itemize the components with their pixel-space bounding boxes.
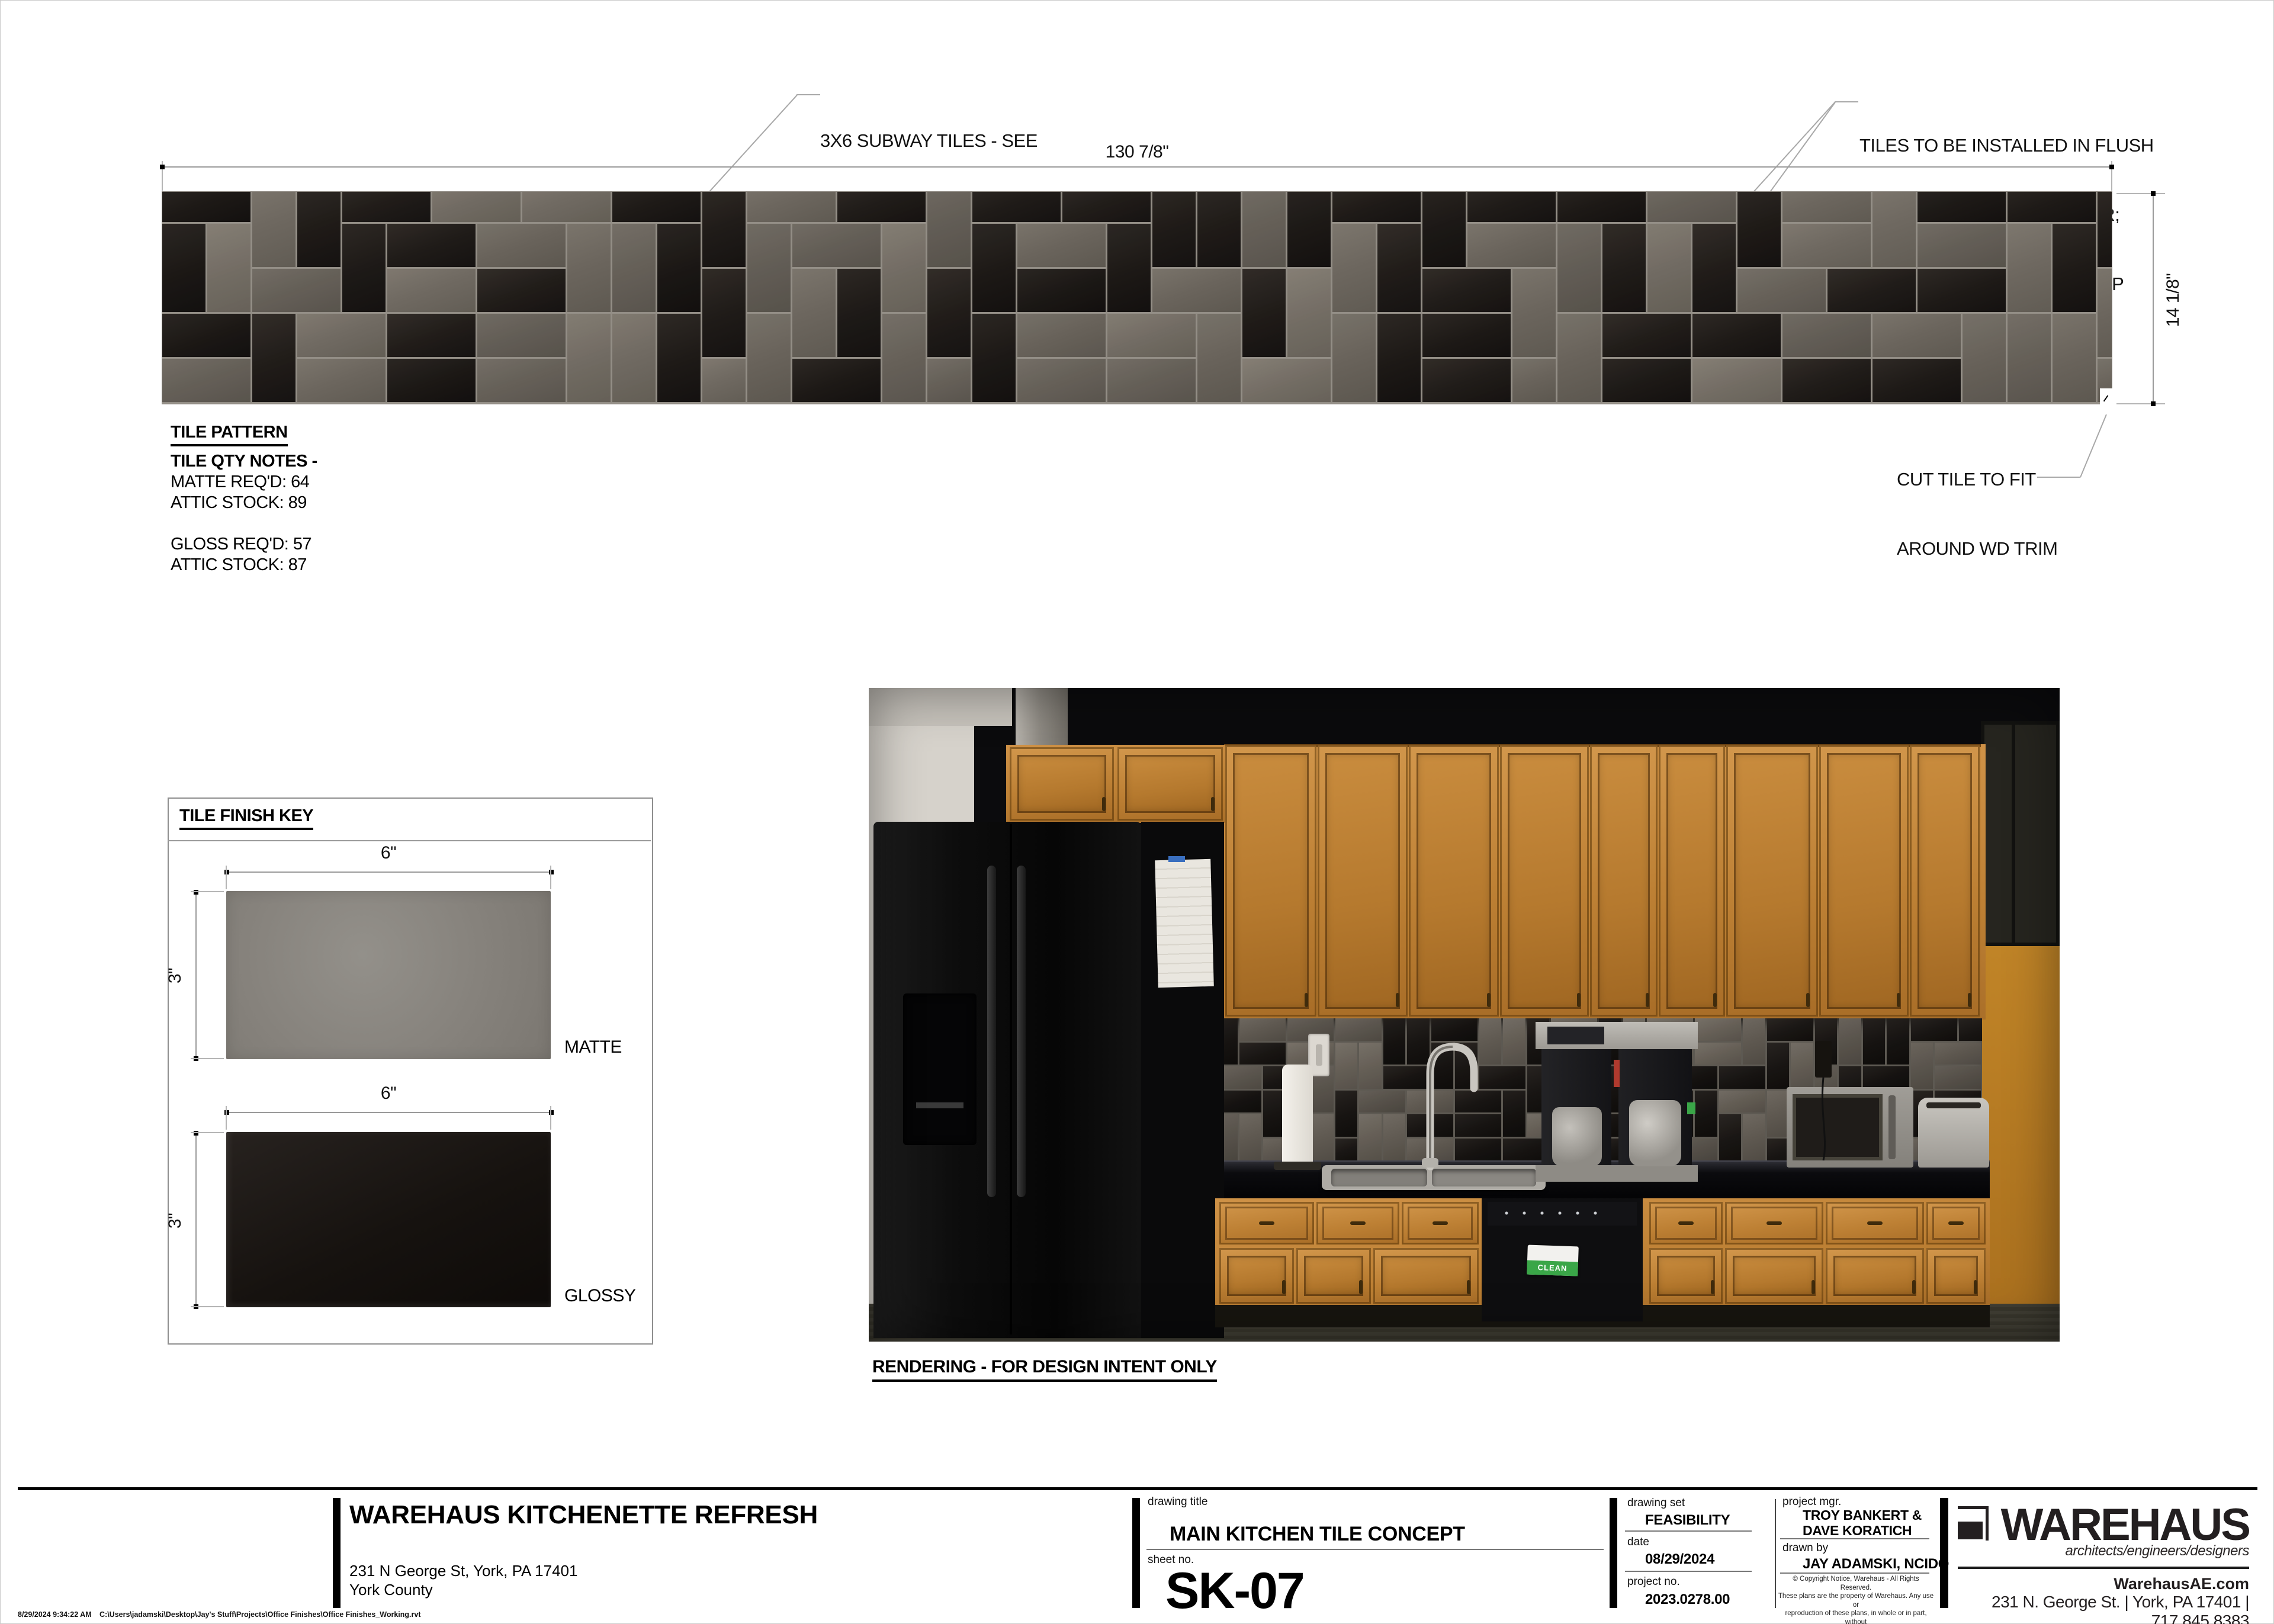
cabinet-door — [1659, 745, 1725, 1017]
divider — [1625, 1571, 1752, 1572]
matte-tile — [522, 192, 611, 222]
dimension-matte-width: 6" — [226, 843, 551, 863]
matte-tile — [2008, 314, 2051, 402]
matte-tile — [927, 359, 971, 402]
dimension-matte-height: 3" — [165, 940, 185, 1011]
cabinet-door — [1225, 745, 1316, 1017]
matte-tile — [297, 314, 386, 357]
cabinet-drawer — [1826, 1202, 1924, 1244]
extension-line — [191, 1132, 224, 1133]
gloss-tile — [2098, 192, 2112, 267]
matte-tile — [432, 192, 521, 222]
divider — [1780, 1572, 1929, 1574]
gloss-tile — [2053, 224, 2096, 312]
matte-tile — [1647, 224, 1691, 312]
matte-tile — [612, 224, 656, 312]
label-project-mgr: project mgr. — [1782, 1496, 1841, 1509]
matte-tile — [1197, 314, 1241, 402]
gloss-tile — [387, 359, 476, 402]
glossy-label: GLOSSY — [564, 1286, 635, 1306]
gloss-tile — [927, 269, 971, 357]
clean-tag: CLEAN — [1527, 1245, 1579, 1276]
cabinet-drawer — [1649, 1202, 1723, 1244]
label-date: date — [1627, 1536, 1649, 1549]
matte-tile — [1242, 192, 1286, 267]
gloss-tile — [1107, 224, 1151, 312]
matte-tile — [1107, 314, 1196, 357]
date-value: 08/29/2024 — [1645, 1551, 1714, 1568]
gloss-tile — [1242, 269, 1286, 357]
logo-tagline: architects/engineers/designers — [1958, 1543, 2249, 1559]
gloss-tile — [1692, 314, 1781, 357]
gloss-tile — [972, 192, 1061, 222]
tile-finish-key-heading: TILE FINISH KEY — [179, 806, 313, 830]
matte-tile — [1332, 224, 1376, 312]
project-number: 2023.0278.00 — [1645, 1591, 1730, 1608]
file-path: C:\Users\jadamski\Desktop\Jay's Stuff\Pr… — [99, 1610, 421, 1619]
gloss-tile — [1602, 314, 1691, 357]
gloss-tile — [837, 192, 926, 222]
gloss-tile — [1332, 192, 1421, 222]
gloss-tile — [2008, 192, 2096, 222]
matte-tile — [882, 314, 926, 402]
divider — [1146, 1549, 1604, 1550]
matte-tile — [1242, 359, 1331, 402]
cabinet-door — [1318, 745, 1408, 1017]
matte-tile — [1872, 314, 1961, 357]
matte-tile — [792, 269, 836, 357]
project-manager-line1: TROY BANKERT & — [1803, 1507, 1922, 1523]
dimension-line — [195, 1133, 197, 1307]
warehaus-logo-icon — [1958, 1505, 1991, 1541]
matte-tile — [702, 359, 746, 402]
cabinet-door — [1500, 745, 1589, 1017]
matte-tile — [747, 224, 791, 312]
matte-tile — [1557, 224, 1601, 312]
extension-line — [2116, 403, 2165, 404]
project-manager-line2: DAVE KORATICH — [1803, 1523, 1912, 1539]
gloss-tile — [477, 269, 566, 312]
matte-tile — [387, 269, 476, 312]
leader-line — [1835, 101, 1858, 102]
dimension-tick — [2151, 191, 2156, 196]
gloss-tile — [612, 192, 701, 222]
logo-rule — [1958, 1567, 2249, 1569]
gloss-tile — [1737, 192, 1781, 267]
matte-tile — [477, 314, 566, 357]
cabinet-drawer — [1402, 1202, 1479, 1244]
cabinet-door — [1725, 1248, 1823, 1304]
project-address-line2: York County — [349, 1581, 433, 1599]
matte-tile — [1737, 269, 1826, 312]
matte-tile — [162, 359, 250, 402]
matte-tile — [1647, 192, 1736, 222]
matte-tile — [1963, 314, 2006, 402]
gloss-tile — [1467, 192, 1556, 222]
gloss-tile — [1377, 224, 1421, 312]
cabinet-door — [1726, 745, 1818, 1017]
print-timestamp: 8/29/2024 9:34:22 AM — [18, 1610, 92, 1619]
label-drawing-set: drawing set — [1627, 1497, 1685, 1510]
gloss-tile — [1422, 269, 1511, 312]
gloss-tile — [1602, 224, 1646, 312]
matte-tile — [2098, 269, 2112, 357]
matte-tile — [252, 192, 296, 267]
gloss-tile — [387, 314, 476, 357]
gloss-tile — [702, 269, 746, 357]
matte-tile — [882, 224, 926, 312]
drawing-set: FEASIBILITY — [1645, 1512, 1730, 1529]
matte-tile — [1017, 359, 1106, 402]
extension-line — [550, 866, 551, 889]
extension-line — [226, 866, 227, 889]
gloss-tile — [252, 314, 296, 402]
gloss-tile — [387, 224, 476, 267]
matte-tile — [252, 269, 341, 312]
cabinet-drawer — [1316, 1202, 1399, 1244]
gloss-tile — [837, 269, 881, 357]
annotation-cut-tile: CUT TILE TO FIT AROUND WD TRIM — [1897, 422, 2057, 606]
matte-tile — [1512, 269, 1556, 357]
dimension-strip-height: 14 1/8" — [2163, 259, 2183, 342]
gloss-tile — [972, 314, 1016, 402]
gloss-tile — [657, 224, 701, 312]
gloss-tile — [162, 314, 250, 357]
sheet-number: SK-07 — [1165, 1562, 1304, 1620]
cabinet-door — [1010, 747, 1114, 821]
gloss-tile — [1692, 224, 1736, 312]
gloss-tile — [1197, 192, 1241, 267]
cabinet-door — [1590, 745, 1658, 1017]
matte-tile — [1287, 269, 1331, 357]
matte-tile — [1557, 314, 1601, 402]
gloss-tile — [1287, 192, 1331, 267]
label-drawing-title: drawing title — [1148, 1496, 1207, 1509]
dimension-line — [226, 1112, 551, 1113]
gloss-tile — [1918, 269, 2006, 312]
matte-tile — [477, 359, 566, 402]
matte-tile — [792, 224, 881, 267]
divider — [1780, 1538, 1929, 1539]
gloss-tile — [1782, 359, 1871, 402]
glossy-tile-sample — [226, 1132, 551, 1307]
gloss-tile — [342, 192, 431, 222]
drawn-by: JAY ADAMSKI, NCIDQ — [1803, 1556, 1949, 1572]
gloss-tile — [657, 314, 701, 402]
gloss-tile — [297, 192, 341, 267]
dimension-line — [226, 872, 551, 873]
leader-line — [796, 94, 820, 95]
cabinet-door — [1926, 1248, 1986, 1304]
tile-pattern-strip — [162, 192, 2112, 404]
gloss-tile — [1872, 359, 1961, 402]
gloss-tile — [972, 224, 1016, 312]
gloss-tile — [792, 359, 881, 402]
gloss-tile — [1422, 359, 1511, 402]
cabinet-door — [1373, 1248, 1479, 1304]
project-address-line1: 231 N George St, York, PA 17401 — [349, 1562, 577, 1580]
matte-tile — [297, 359, 386, 402]
divider — [168, 840, 651, 841]
gloss-tile — [1377, 314, 1421, 402]
dimension-glossy-height: 3" — [165, 1185, 185, 1256]
dimension-line-width — [162, 166, 2112, 168]
extension-line — [191, 1306, 224, 1307]
matte-tile — [612, 314, 656, 402]
gloss-tile — [1918, 192, 2006, 222]
matte-label: MATTE — [564, 1037, 622, 1057]
matte-tile — [1782, 224, 1871, 267]
matte-tile — [1512, 359, 1556, 402]
matte-tile — [1332, 314, 1376, 402]
extension-line — [550, 1106, 551, 1130]
cabinet-door — [1910, 745, 1980, 1017]
matte-tile — [1017, 314, 1106, 357]
cabinet-door — [1117, 747, 1223, 821]
label-project-no: project no. — [1627, 1575, 1680, 1588]
cabinet-drawer — [1926, 1202, 1986, 1244]
matte-tile — [2008, 224, 2051, 312]
matte-tile — [747, 192, 836, 222]
drawing-title: MAIN KITCHEN TILE CONCEPT — [1170, 1523, 1465, 1546]
logo-website: WarehausAE.com — [1958, 1575, 2249, 1593]
cabinet-drawer — [1219, 1202, 1314, 1244]
titleblock-divider — [333, 1498, 341, 1608]
titleblock-thin-divider — [1775, 1499, 1776, 1608]
cabinet-door — [1819, 745, 1909, 1017]
dimension-tick — [2109, 165, 2114, 169]
matte-tile — [207, 224, 250, 312]
divider — [1625, 1530, 1752, 1532]
matte-tile — [567, 224, 611, 312]
titleblock-divider — [1132, 1498, 1140, 1608]
gloss-tile — [162, 224, 205, 312]
matte-tile — [747, 314, 791, 402]
leader-line — [2080, 414, 2107, 478]
matte-tile — [1017, 224, 1106, 267]
gloss-tile — [1152, 192, 1196, 267]
cabinet-door — [1826, 1248, 1924, 1304]
cabinet-door — [1296, 1248, 1371, 1304]
dimension-line — [195, 892, 197, 1059]
label-drawn-by: drawn by — [1782, 1542, 1828, 1555]
cabinet-door — [1219, 1248, 1294, 1304]
tile-pattern-heading: TILE PATTERN — [171, 423, 288, 446]
project-title: WAREHAUS KITCHENETTE REFRESH — [349, 1500, 818, 1530]
titleblock-topline — [18, 1487, 2257, 1490]
drawing-sheet: 3X6 SUBWAY TILES - SEE KEY FOR FINISHES … — [0, 0, 2274, 1624]
matte-tile — [1782, 192, 1871, 222]
extension-line — [2116, 193, 2165, 194]
matte-tile — [1107, 359, 1196, 402]
gloss-tile — [1017, 269, 1106, 312]
extension-line — [226, 1106, 227, 1130]
kitchen-rendering-photo: CLEAN — [869, 688, 2060, 1342]
gloss-tile — [702, 192, 746, 267]
gloss-tile — [1422, 192, 1466, 267]
matte-tile — [1872, 192, 1916, 267]
rendering-caption: RENDERING - FOR DESIGN INTENT ONLY — [872, 1357, 1217, 1382]
cabinet-door — [1409, 745, 1499, 1017]
tile-qty-notes: TILE QTY NOTES - MATTE REQ'D: 64 ATTIC S… — [171, 451, 317, 575]
leader-line — [2037, 477, 2080, 478]
gloss-tile — [162, 192, 250, 222]
matte-tile — [477, 224, 566, 267]
gloss-tile — [1557, 192, 1646, 222]
matte-tile — [1467, 224, 1556, 267]
matte-tile — [567, 314, 611, 402]
matte-tile — [927, 192, 971, 267]
dimension-glossy-width: 6" — [226, 1083, 551, 1104]
matte-tile — [1152, 269, 1241, 312]
dimension-line-height — [2153, 194, 2154, 404]
matte-tile — [1918, 224, 2006, 267]
gloss-tile — [1422, 314, 1511, 357]
cabinet-door — [1649, 1248, 1723, 1304]
gloss-tile — [1827, 269, 1916, 312]
dishwasher-buttons — [1498, 1210, 1597, 1216]
titleblock-divider — [1940, 1498, 1948, 1608]
clean-tag-text: CLEAN — [1527, 1260, 1578, 1276]
gloss-tile — [1602, 359, 1691, 402]
matte-tile — [1692, 359, 1781, 402]
extension-line — [191, 891, 224, 892]
extension-line — [191, 1058, 224, 1059]
gloss-tile — [342, 224, 386, 312]
dimension-tick — [160, 165, 165, 169]
gloss-tile — [1062, 192, 1151, 222]
matte-tile — [1782, 314, 1871, 357]
matte-tile — [2053, 314, 2096, 402]
matte-tile-sample — [226, 891, 551, 1059]
titleblock-divider — [1610, 1498, 1617, 1608]
dimension-strip-width: 130 7/8" — [162, 142, 2112, 162]
dimension-tick — [2151, 401, 2156, 406]
copyright-notice: © Copyright Notice, Warehaus - All Right… — [1777, 1575, 1935, 1624]
cabinet-drawer — [1725, 1202, 1823, 1244]
logo-contact: 231 N. George St. | York, PA 17401 | 717… — [1958, 1593, 2249, 1624]
